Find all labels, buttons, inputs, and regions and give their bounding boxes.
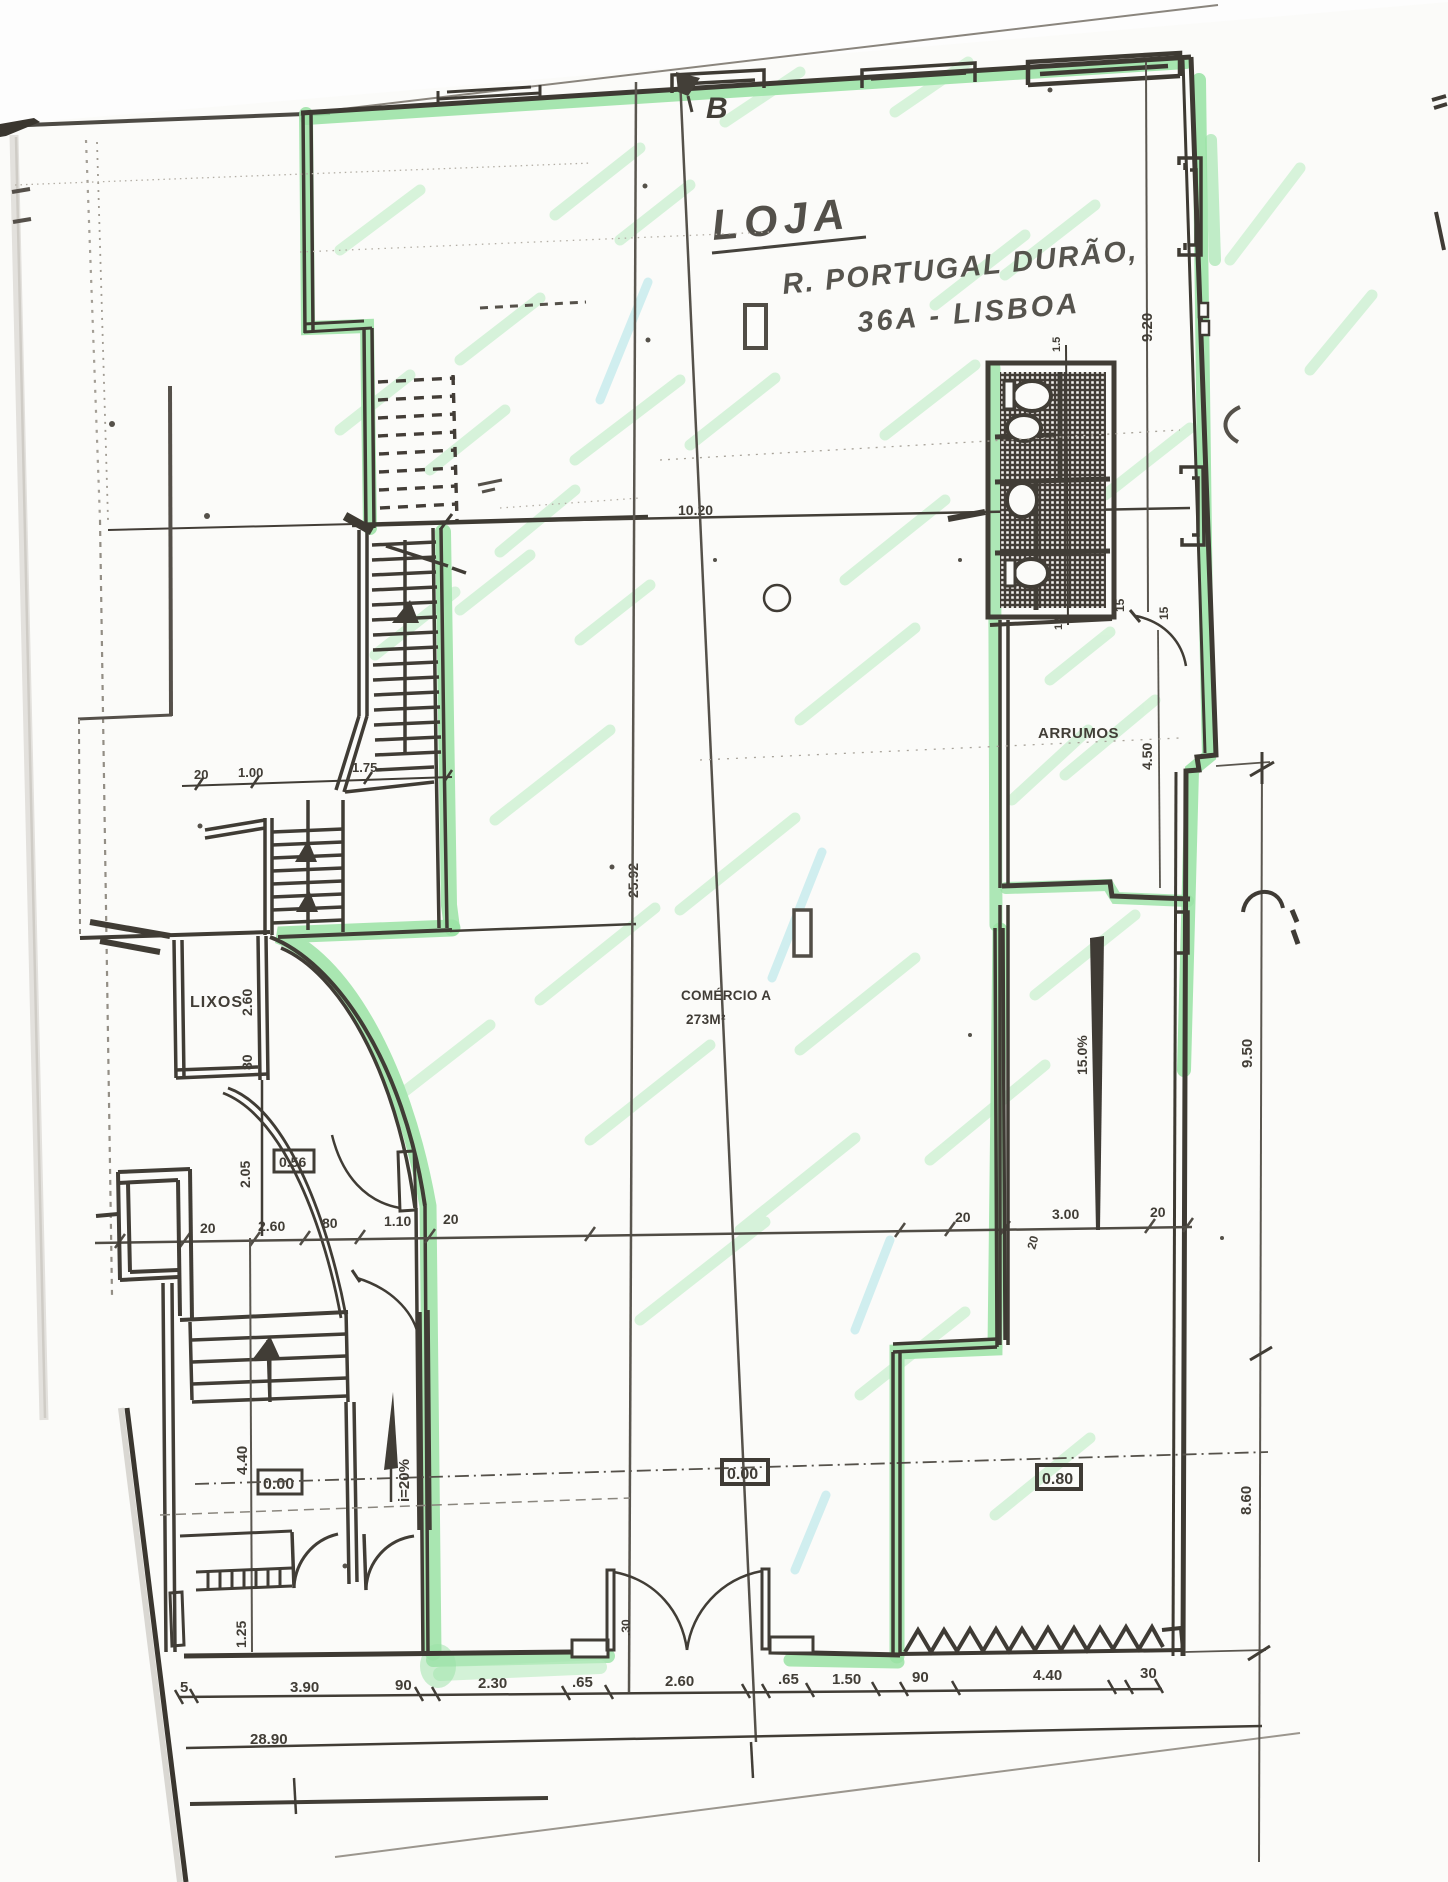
svg-text:2.30: 2.30 xyxy=(478,1675,507,1692)
svg-text:0.00: 0.00 xyxy=(263,1476,294,1493)
svg-text:.65: .65 xyxy=(778,1671,799,1688)
svg-text:5: 5 xyxy=(180,1679,188,1696)
svg-text:4.50: 4.50 xyxy=(1139,743,1155,770)
svg-text:B: B xyxy=(706,92,728,125)
svg-text:15: 15 xyxy=(1157,606,1171,620)
svg-text:8.60: 8.60 xyxy=(1238,1486,1255,1515)
svg-text:4.40: 4.40 xyxy=(1033,1667,1062,1684)
svg-text:.30: .30 xyxy=(619,1619,633,1636)
svg-text:COMÉRCIO A: COMÉRCIO A xyxy=(681,988,771,1003)
svg-text:1.10: 1.10 xyxy=(384,1213,411,1229)
svg-text:ARRUMOS: ARRUMOS xyxy=(1038,725,1119,742)
svg-text:15: 15 xyxy=(1113,598,1127,612)
svg-text:4.40: 4.40 xyxy=(234,1446,251,1475)
svg-text:15.0%: 15.0% xyxy=(1074,1035,1090,1075)
svg-text:i=20%: i=20% xyxy=(396,1459,413,1502)
svg-text:2.60: 2.60 xyxy=(239,989,255,1016)
svg-text:1.50: 1.50 xyxy=(832,1671,861,1688)
svg-text:1.25: 1.25 xyxy=(233,1621,249,1648)
svg-text:90: 90 xyxy=(912,1669,929,1686)
svg-text:0.00: 0.00 xyxy=(727,1466,758,1483)
svg-text:9.20: 9.20 xyxy=(1139,313,1156,342)
svg-text:1.5: 1.5 xyxy=(1051,337,1063,352)
svg-text:20: 20 xyxy=(200,1220,216,1236)
svg-text:.65: .65 xyxy=(572,1674,593,1691)
svg-text:28.90: 28.90 xyxy=(250,1731,288,1748)
svg-text:3.00: 3.00 xyxy=(1052,1206,1079,1222)
svg-text:20: 20 xyxy=(194,767,208,782)
svg-text:90: 90 xyxy=(395,1677,412,1694)
svg-text:273M²: 273M² xyxy=(686,1012,726,1027)
svg-text:1.00: 1.00 xyxy=(238,765,263,780)
svg-text:80: 80 xyxy=(239,1054,255,1070)
svg-text:2.05: 2.05 xyxy=(237,1161,253,1188)
svg-text:20: 20 xyxy=(443,1211,459,1227)
svg-text:80: 80 xyxy=(322,1215,338,1231)
svg-text:LIXOS: LIXOS xyxy=(190,994,243,1011)
svg-text:30: 30 xyxy=(1140,1665,1157,1682)
svg-text:10.20: 10.20 xyxy=(678,502,713,518)
svg-text:3.90: 3.90 xyxy=(290,1679,319,1696)
svg-text:9.50: 9.50 xyxy=(1239,1039,1256,1068)
svg-text:1.75: 1.75 xyxy=(352,760,377,775)
svg-text:20: 20 xyxy=(1150,1204,1166,1220)
svg-text:0.80: 0.80 xyxy=(1042,1471,1073,1488)
svg-text:2.60: 2.60 xyxy=(665,1673,694,1690)
svg-text:20: 20 xyxy=(955,1209,971,1225)
svg-text:2.60: 2.60 xyxy=(258,1218,285,1234)
